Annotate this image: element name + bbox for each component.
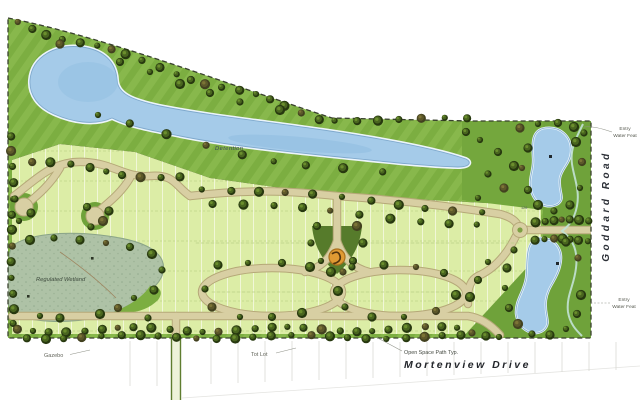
tree-icon (7, 225, 17, 235)
tree-icon (50, 234, 57, 241)
tree-icon (348, 263, 355, 270)
tree-icon (576, 290, 586, 300)
tree-icon (451, 290, 461, 300)
tree-icon (352, 221, 362, 231)
tree-icon (550, 235, 558, 243)
goddard-road-label: Goddard Road (601, 150, 612, 261)
tree-icon (315, 115, 324, 124)
tree-icon (385, 214, 395, 224)
tree-icon (550, 207, 557, 214)
tree-icon (528, 330, 535, 337)
tree-icon (23, 334, 31, 342)
tree-icon (367, 312, 376, 321)
tree-icon (585, 217, 592, 224)
tree-icon (502, 285, 508, 291)
tree-icon (307, 239, 314, 246)
tree-icon (318, 258, 324, 264)
tree-icon (126, 119, 134, 127)
tree-icon (201, 285, 208, 292)
tree-icon (161, 129, 171, 139)
tree-icon (172, 333, 181, 342)
tree-icon (413, 264, 419, 270)
tree-icon (475, 195, 481, 201)
tree-icon (213, 335, 221, 343)
tree-icon (144, 314, 151, 321)
tree-icon (16, 218, 22, 224)
tree-icon (474, 222, 480, 228)
tree-icon (485, 259, 491, 265)
tree-icon (9, 178, 18, 187)
tree-icon (138, 57, 145, 64)
tree-icon (439, 332, 446, 339)
tree-icon (9, 163, 16, 170)
tree-icon (369, 328, 375, 334)
tree-icon (358, 238, 367, 247)
tree-icon (531, 236, 540, 245)
tree-icon (235, 86, 244, 95)
tree-icon (379, 260, 388, 269)
tree-icon (333, 286, 343, 296)
tree-icon (25, 235, 35, 245)
tree-icon (394, 200, 404, 210)
entry-water-feature-top-label-line1: Entry (619, 126, 631, 132)
tree-icon (60, 335, 67, 342)
tree-icon (230, 333, 240, 343)
tree-icon (11, 195, 18, 202)
tree-icon (468, 329, 475, 336)
tree-icon (158, 266, 165, 273)
tree-icon (422, 323, 429, 330)
tree-icon (299, 324, 307, 332)
entry-water-feature-top-label-line2: Water Feat (613, 133, 637, 139)
tree-icon (465, 292, 475, 302)
tree-icon (131, 295, 137, 301)
tree-icon (496, 334, 502, 340)
tree-icon (282, 189, 289, 196)
tree-icon (7, 257, 16, 266)
tree-icon (7, 132, 15, 140)
tree-icon (103, 240, 109, 246)
tree-icon (326, 267, 336, 277)
tree-icon (236, 98, 243, 105)
tree-icon (373, 116, 383, 126)
tree-icon (442, 115, 448, 121)
tree-icon (421, 205, 428, 212)
tree-icon (253, 91, 259, 97)
tree-icon (573, 310, 581, 318)
tree-icon (213, 260, 222, 269)
tree-icon (9, 243, 16, 250)
tree-icon (510, 246, 517, 253)
tree-icon (115, 325, 121, 331)
tree-icon (41, 30, 51, 40)
tree-icon (77, 333, 86, 342)
detention-label: Detention (215, 146, 243, 152)
tree-icon (8, 211, 16, 219)
tree-icon (565, 200, 574, 209)
tree-icon (245, 260, 251, 266)
tree-icon (249, 334, 256, 341)
tree-icon (104, 206, 113, 215)
tree-icon (541, 236, 547, 242)
tree-icon (523, 143, 532, 152)
tree-icon (252, 325, 259, 332)
tree-icon (6, 146, 16, 156)
tree-icon (569, 122, 579, 132)
tree-icon (566, 215, 574, 223)
tree-icon (37, 313, 43, 319)
tree-icon (417, 218, 424, 225)
tree-icon (341, 303, 348, 310)
tree-icon (254, 187, 264, 197)
tree-icon (302, 161, 310, 169)
tree-icon (155, 332, 162, 339)
tree-icon (214, 328, 222, 336)
tree-icon (479, 209, 485, 215)
tree-icon (98, 325, 107, 334)
tree-icon (515, 123, 524, 132)
tree-icon (227, 187, 235, 195)
tree-icon (355, 211, 363, 219)
tree-icon (509, 161, 519, 171)
tree-icon (402, 334, 410, 342)
tree-icon (284, 324, 290, 330)
tree-icon (158, 174, 165, 181)
tree-icon (118, 171, 126, 179)
tree-icon (305, 262, 315, 272)
tree-icon (167, 326, 174, 333)
tree-icon (218, 84, 225, 91)
tree-icon (332, 118, 338, 124)
tree-icon (207, 302, 216, 311)
tree-icon (203, 142, 210, 149)
tree-icon (9, 304, 19, 314)
tree-icon (317, 324, 327, 334)
tree-icon (339, 194, 345, 200)
tree-icon (238, 200, 248, 210)
tree-icon (174, 71, 180, 77)
tree-icon (41, 334, 51, 344)
tree-icon (9, 290, 17, 298)
tree-icon (437, 322, 446, 331)
tree-icon (200, 329, 206, 335)
fountain-icon (556, 262, 559, 265)
tree-icon (206, 89, 214, 97)
tree-icon (147, 249, 157, 259)
tree-icon (524, 186, 532, 194)
tree-icon (580, 129, 587, 136)
tree-icon (116, 58, 124, 66)
tree-icon (275, 105, 285, 115)
tree-icon (108, 45, 116, 53)
entry-water-feature-bottom-label-line1: Entry (618, 297, 630, 303)
tree-icon (209, 200, 217, 208)
tree-icon (307, 331, 315, 339)
tree-icon (477, 137, 483, 143)
tree-icon (535, 121, 541, 127)
tree-icon (75, 235, 84, 244)
tree-icon (268, 313, 276, 321)
tree-icon (95, 309, 105, 319)
mortenview-drive-label: Mortenview Drive (404, 359, 531, 371)
tree-icon (559, 217, 565, 223)
tree-icon (136, 330, 146, 340)
tree-icon (183, 326, 192, 335)
tree-icon (297, 308, 307, 318)
tree-icon (268, 323, 277, 332)
tree-icon (121, 49, 131, 59)
tree-icon (13, 325, 22, 334)
tree-icon (344, 334, 351, 341)
offsite-parcel-lines (130, 341, 640, 398)
tree-icon (288, 332, 294, 338)
tree-icon (481, 331, 490, 340)
tree-icon (95, 112, 101, 118)
tree-icon (577, 185, 583, 191)
tree-icon (499, 183, 508, 192)
tree-icon (308, 190, 317, 199)
site-ground (0, 0, 640, 400)
tree-icon (352, 327, 361, 336)
tree-icon (574, 236, 583, 245)
tree-icon (456, 330, 465, 339)
tree-icon (8, 275, 14, 281)
tree-icon (147, 69, 153, 75)
tree-icon (175, 79, 185, 89)
tree-icon (463, 114, 471, 122)
tree-icon (193, 335, 199, 341)
tree-icon (338, 163, 348, 173)
tree-icon (448, 206, 457, 215)
tree-icon (278, 259, 286, 267)
tree-icon (550, 216, 559, 225)
tree-icon (542, 218, 549, 225)
fountain-icon (549, 155, 552, 158)
tree-icon (325, 331, 335, 341)
tree-icon (531, 217, 541, 227)
tree-icon (146, 323, 156, 333)
regulated-wetland (7, 233, 164, 321)
tree-icon (98, 333, 104, 339)
tree-icon (519, 165, 525, 171)
tree-icon (298, 203, 307, 212)
tree-icon (76, 38, 85, 47)
gazebo-label: Gazebo (44, 353, 63, 359)
tree-icon (395, 116, 402, 123)
tree-icon (86, 163, 95, 172)
tree-icon (513, 319, 523, 329)
tree-icon (502, 263, 511, 272)
tree-icon (267, 331, 276, 340)
tree-icon (237, 314, 243, 320)
tree-icon (440, 269, 448, 277)
tree-icon (585, 238, 591, 244)
tree-icon (175, 172, 184, 181)
regulated-wetland-label: Regulated Wetland (36, 277, 86, 283)
tree-icon (505, 304, 513, 312)
tree-icon (271, 158, 277, 164)
open-space-path-label: Open Space Path Typ. (404, 350, 458, 356)
tree-icon (26, 208, 35, 217)
tree-icon (454, 325, 460, 331)
tree-icon (118, 331, 126, 339)
tree-icon (28, 25, 36, 33)
tree-icon (402, 323, 412, 333)
tree-icon (339, 268, 346, 275)
tree-icon (155, 63, 164, 72)
tree-icon (401, 314, 407, 320)
tree-icon (563, 326, 569, 332)
tree-icon (337, 327, 344, 334)
tree-icon (187, 76, 195, 84)
tree-icon (574, 215, 584, 225)
tree-icon (484, 170, 491, 177)
tree-icon (379, 168, 386, 175)
tree-icon (55, 313, 64, 322)
tree-icon (571, 137, 581, 147)
site-plan-map: Detention Regulated Wetland Gazebo Tot L… (0, 0, 640, 400)
site-plan-page: Detention Regulated Wetland Gazebo Tot L… (0, 0, 640, 400)
tree-icon (87, 223, 94, 230)
tree-icon (561, 237, 570, 246)
tree-icon (384, 326, 392, 334)
tree-icon (15, 19, 21, 25)
tree-icon (417, 114, 426, 123)
tree-icon (103, 168, 109, 174)
tree-icon (83, 203, 91, 211)
tree-icon (67, 161, 74, 168)
tree-icon (45, 157, 55, 167)
tree-icon (432, 307, 440, 315)
tree-icon (136, 172, 146, 182)
central-feature-icon (329, 249, 345, 265)
tree-icon (126, 243, 134, 251)
tree-icon (200, 79, 210, 89)
tree-icon (367, 197, 375, 205)
tree-icon (420, 332, 430, 342)
tree-icon (114, 304, 122, 312)
tree-icon (149, 285, 158, 294)
lot-number-label: 126 (521, 206, 527, 210)
tree-icon (30, 328, 36, 334)
tree-icon (298, 109, 305, 116)
tree-icon (578, 158, 586, 166)
south-entry-road (172, 338, 181, 400)
tree-icon (554, 119, 562, 127)
tree-icon (98, 216, 108, 226)
tree-icon (445, 219, 454, 228)
tot-lot-label: Tot Lot (251, 352, 268, 358)
tree-icon (129, 323, 137, 331)
tree-icon (313, 222, 321, 230)
tree-icon (474, 276, 482, 284)
tree-icon (271, 202, 278, 209)
tree-icon (55, 39, 64, 48)
tree-icon (266, 95, 274, 103)
tree-icon (199, 186, 205, 192)
tree-icon (94, 43, 100, 49)
tree-icon (462, 128, 470, 136)
tree-icon (353, 117, 361, 125)
tree-icon (533, 200, 543, 210)
tree-icon (494, 148, 502, 156)
tree-icon (28, 158, 36, 166)
tree-icon (362, 334, 371, 343)
tree-icon (574, 254, 581, 261)
tree-icon (327, 208, 333, 214)
entry-water-feature-bottom-label-line2: Water Feat (612, 304, 636, 310)
tree-icon (545, 330, 554, 339)
